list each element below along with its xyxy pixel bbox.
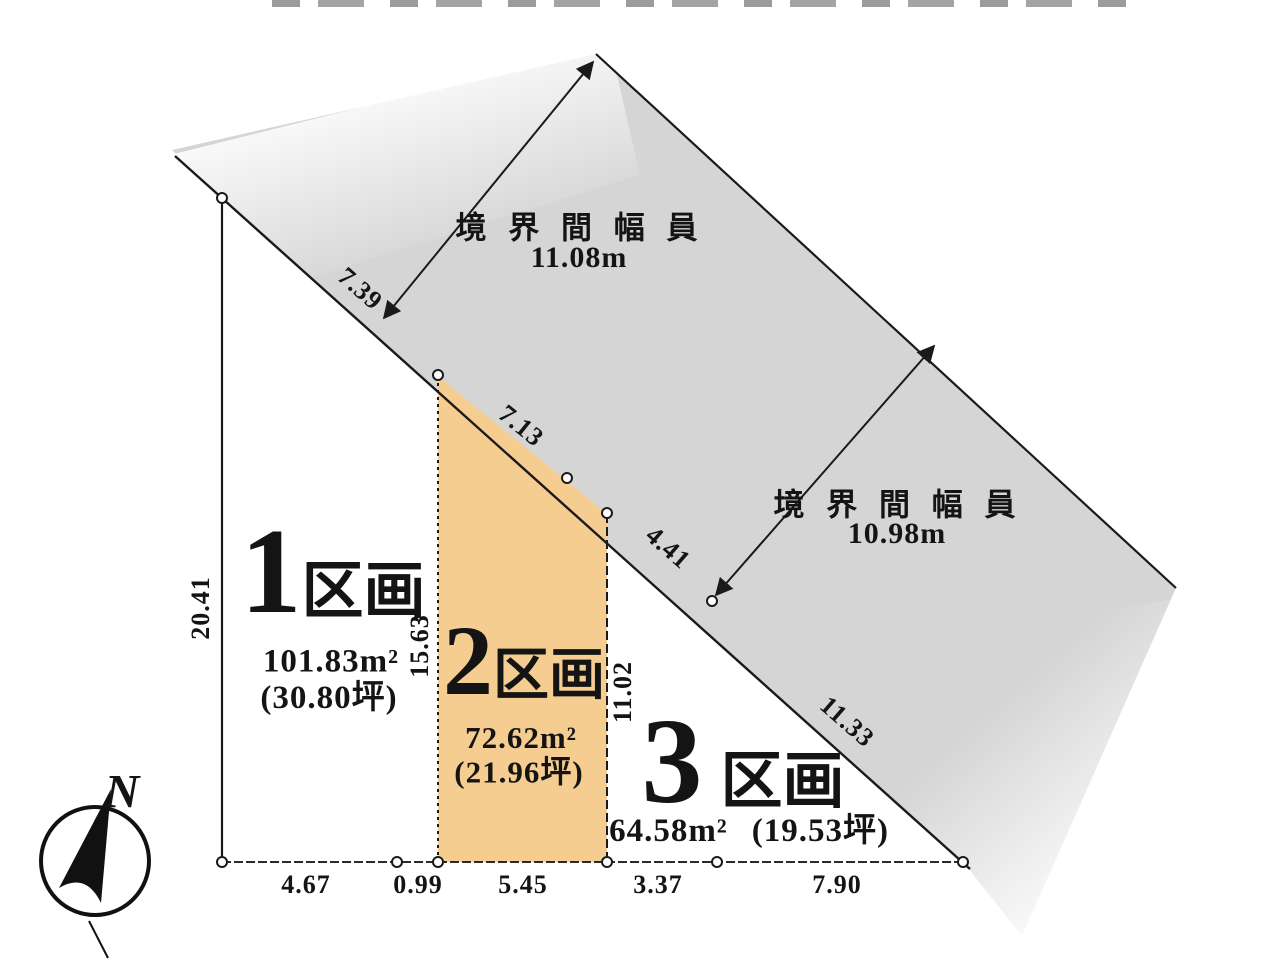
- plot3-tsubo: (19.53坪): [752, 813, 889, 849]
- dim-south-5: 7.90: [812, 870, 862, 900]
- plot3-area: 64.58m²: [609, 813, 728, 849]
- dim-south-1: 4.67: [281, 870, 331, 900]
- plot1-number: 1: [240, 511, 301, 633]
- plot3-area-line: 64.58m²(19.53坪): [609, 803, 889, 851]
- plot2-number: 2: [443, 611, 493, 711]
- road-upper-width: 11.08m: [531, 241, 628, 275]
- dim-plot2-east: 11.02: [608, 661, 638, 723]
- plot1-name: 1 区画: [240, 511, 425, 633]
- plot2-tsubo: (21.96坪): [454, 747, 583, 792]
- dim-south-2: 0.99: [393, 870, 443, 900]
- compass-needle-tail: [89, 921, 108, 958]
- road-lower-width: 10.98m: [848, 517, 947, 551]
- plot2-type: 区画: [493, 648, 605, 704]
- compass-north-label: N: [105, 765, 140, 820]
- plot2-name: 2 区画: [443, 611, 605, 711]
- plot1-tsubo: (30.80坪): [260, 670, 397, 718]
- dim-south-3: 5.45: [498, 870, 548, 900]
- dim-west-edge: 20.41: [186, 576, 216, 640]
- dim-plot2-west: 15.63: [405, 614, 435, 678]
- road-fade-bottom-right: [875, 595, 1205, 960]
- dim-south-4: 3.37: [633, 870, 683, 900]
- land-plot-diagram: 境 界 間 幅 員 11.08m 境 界 間 幅 員 10.98m 1 区画 1…: [0, 0, 1280, 960]
